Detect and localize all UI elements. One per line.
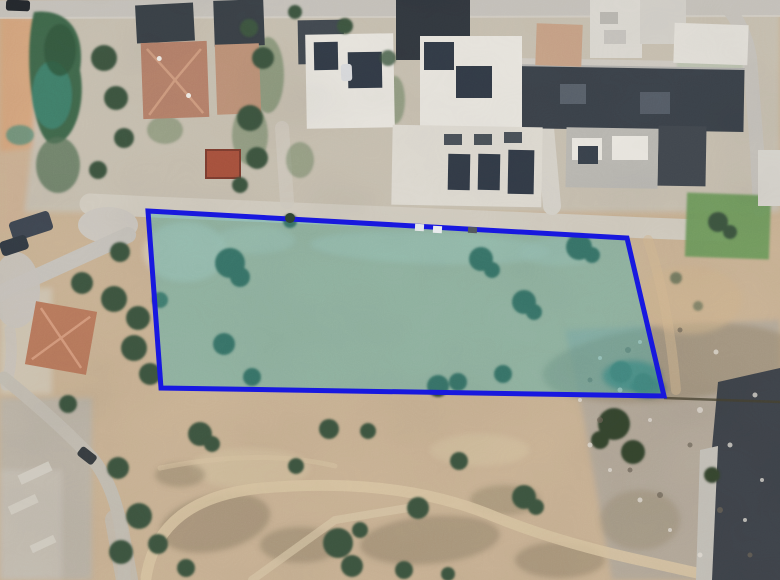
grain-overlay	[0, 0, 780, 580]
satellite-photo	[0, 0, 780, 580]
satellite-image	[0, 0, 780, 580]
